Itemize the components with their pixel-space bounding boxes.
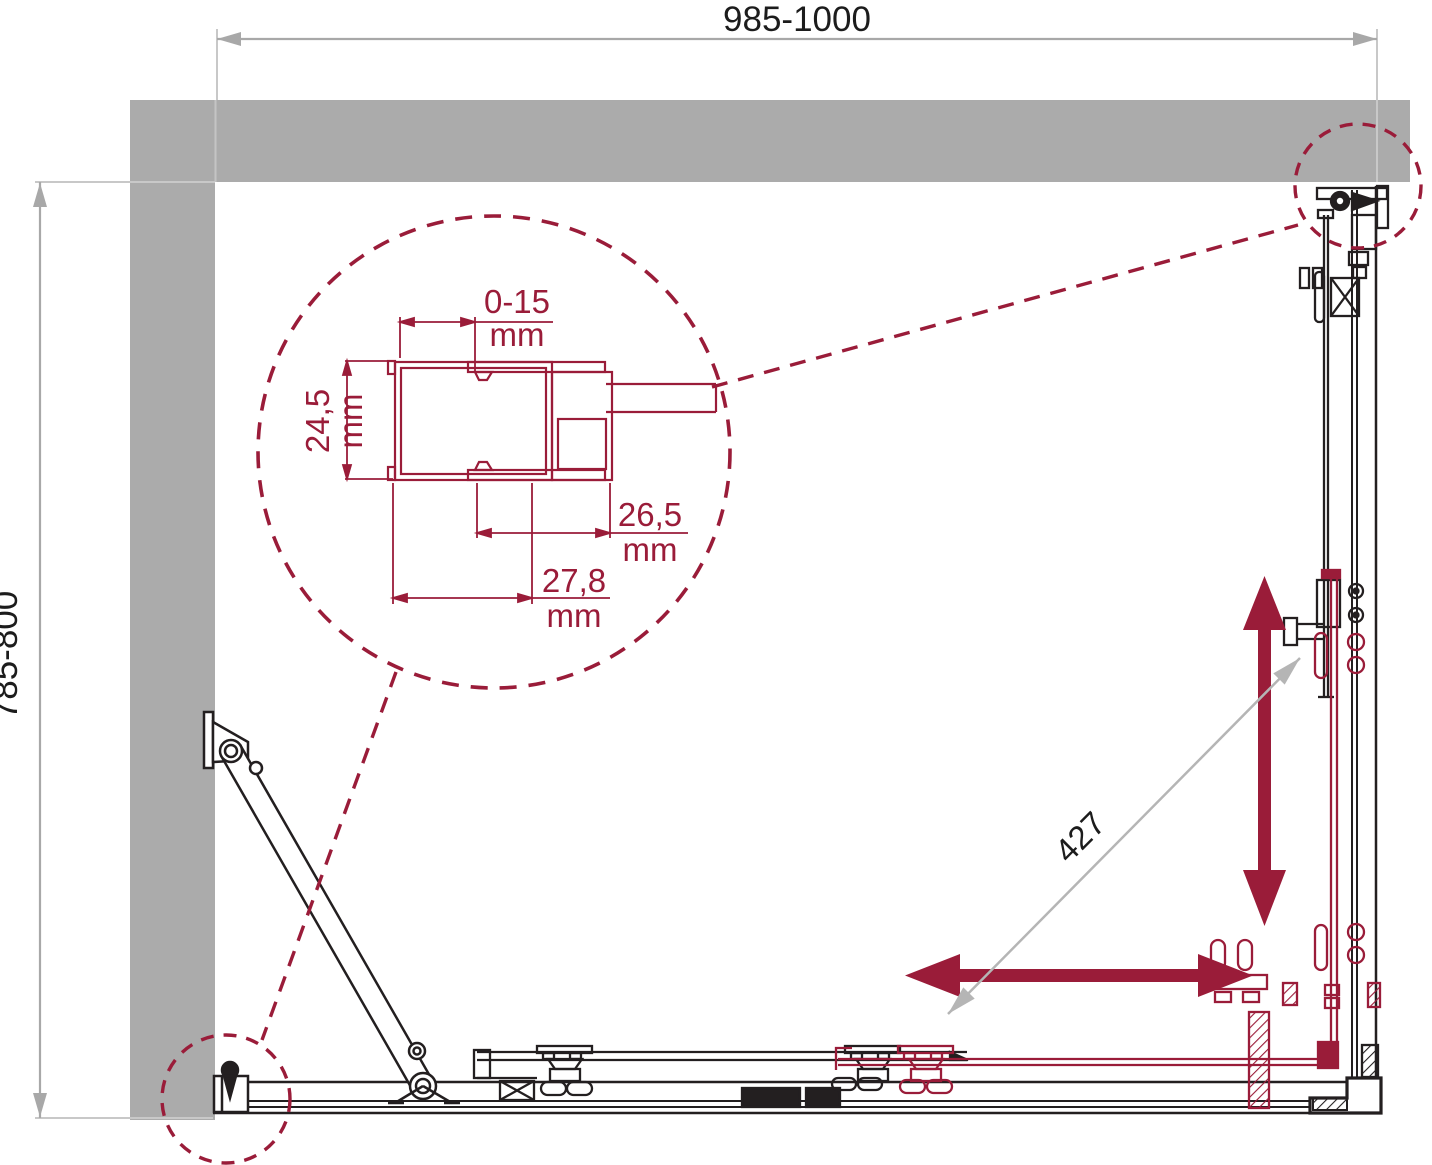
arrowhead-right: [1353, 32, 1377, 46]
left-wall: [130, 182, 215, 1120]
depth-unit: mm: [332, 394, 369, 449]
pointer: [1352, 193, 1377, 210]
depth-dimension-label: 785-800: [0, 591, 25, 719]
wall-profile-outer: [395, 362, 552, 480]
technical-drawing-page: 985-1000 785-800: [0, 0, 1432, 1165]
leader-line-top: [712, 225, 1298, 387]
arrowhead-bottom: [33, 1093, 47, 1117]
wall-plate: [204, 712, 213, 768]
track-block: [742, 1088, 800, 1107]
door-end-cap-alt: [1322, 570, 1340, 578]
arrowhead-left: [217, 32, 241, 46]
detail-dimension-labels: 0-15 mm 24,5 mm 26,5 mm 27,8 mm: [299, 283, 682, 634]
profile-cross-section: [388, 361, 716, 480]
wall-profile-inner: [401, 368, 546, 474]
opening-dimension: 427: [948, 658, 1300, 1014]
slide-arrow-vertical: [1243, 576, 1286, 926]
detail-callouts: [162, 124, 1421, 1163]
bracket-section: [1368, 983, 1380, 1007]
screw-tip: [224, 1076, 236, 1098]
screw-inner: [414, 1048, 421, 1055]
pivot-inner: [225, 745, 237, 757]
glass-holder: [552, 372, 612, 480]
glass-holder-inner: [558, 419, 606, 469]
door-end-cap: [474, 1050, 490, 1078]
inner-width-value: 26,5: [618, 496, 682, 533]
wall-profile-bottom-left: [214, 1062, 248, 1112]
roller-carriage-alt: [898, 1046, 953, 1093]
opening-dimension-label: 427: [1047, 804, 1112, 869]
bottom-door-panel: [474, 1046, 968, 1107]
roller-carriage: [537, 1046, 592, 1095]
top-hook: [475, 372, 492, 380]
shower-enclosure-plan-drawing: 985-1000 785-800: [0, 0, 1432, 1165]
adjust-unit: mm: [490, 316, 545, 353]
inner-width-unit: mm: [623, 531, 678, 568]
door-end-cap: [1318, 210, 1333, 218]
outer-width-value: 27,8: [542, 562, 606, 599]
screw-hole: [250, 762, 262, 774]
bracket-section: [1283, 983, 1297, 1005]
depth-value: 24,5: [299, 389, 336, 453]
arrowhead-top: [33, 183, 47, 207]
track-block: [806, 1088, 840, 1107]
adjust-value: 0-15: [484, 283, 550, 320]
top-wall: [130, 100, 1410, 182]
mount-tab: [388, 361, 395, 374]
slide-direction-arrows: [905, 576, 1286, 997]
slide-arrow-horizontal: [905, 954, 1253, 997]
width-dimension-label: 985-1000: [723, 0, 871, 39]
support-section: [1249, 1012, 1269, 1108]
corner-elbow: [1318, 1042, 1338, 1068]
dimension-line: [948, 658, 1300, 1014]
mount-tab: [388, 467, 395, 480]
bottom-hook: [475, 462, 492, 470]
guide-block: [500, 1081, 534, 1100]
outer-width-unit: mm: [547, 597, 602, 634]
folding-arm: [204, 712, 460, 1103]
